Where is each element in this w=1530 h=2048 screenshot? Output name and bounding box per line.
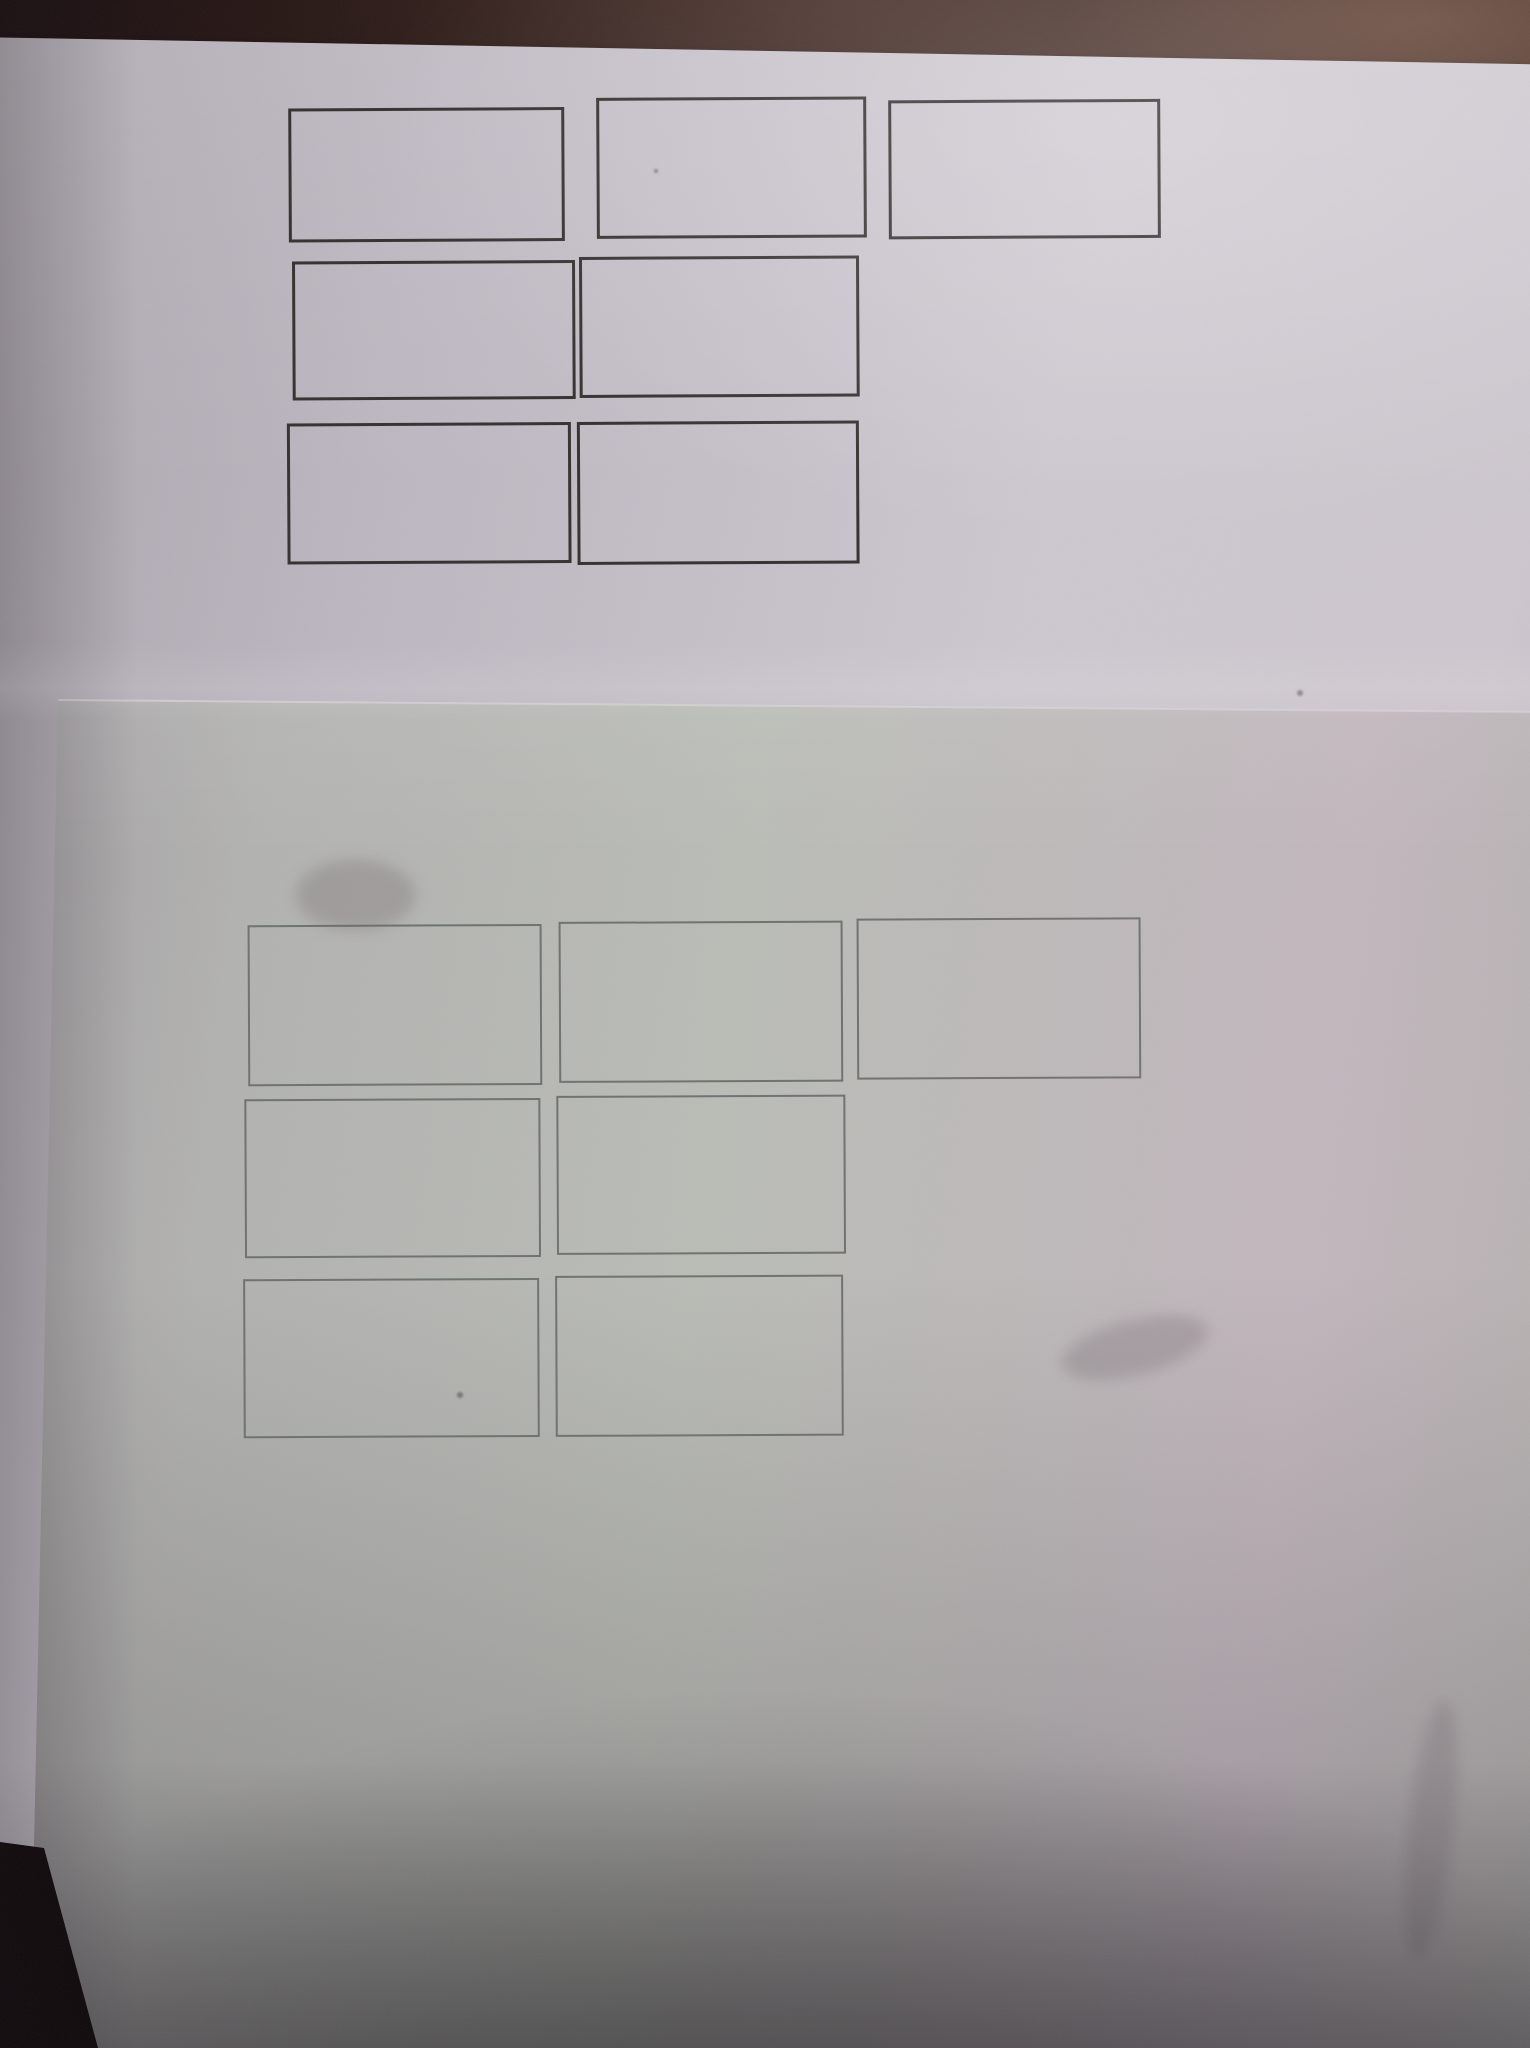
photo-frame xyxy=(0,0,1530,2048)
